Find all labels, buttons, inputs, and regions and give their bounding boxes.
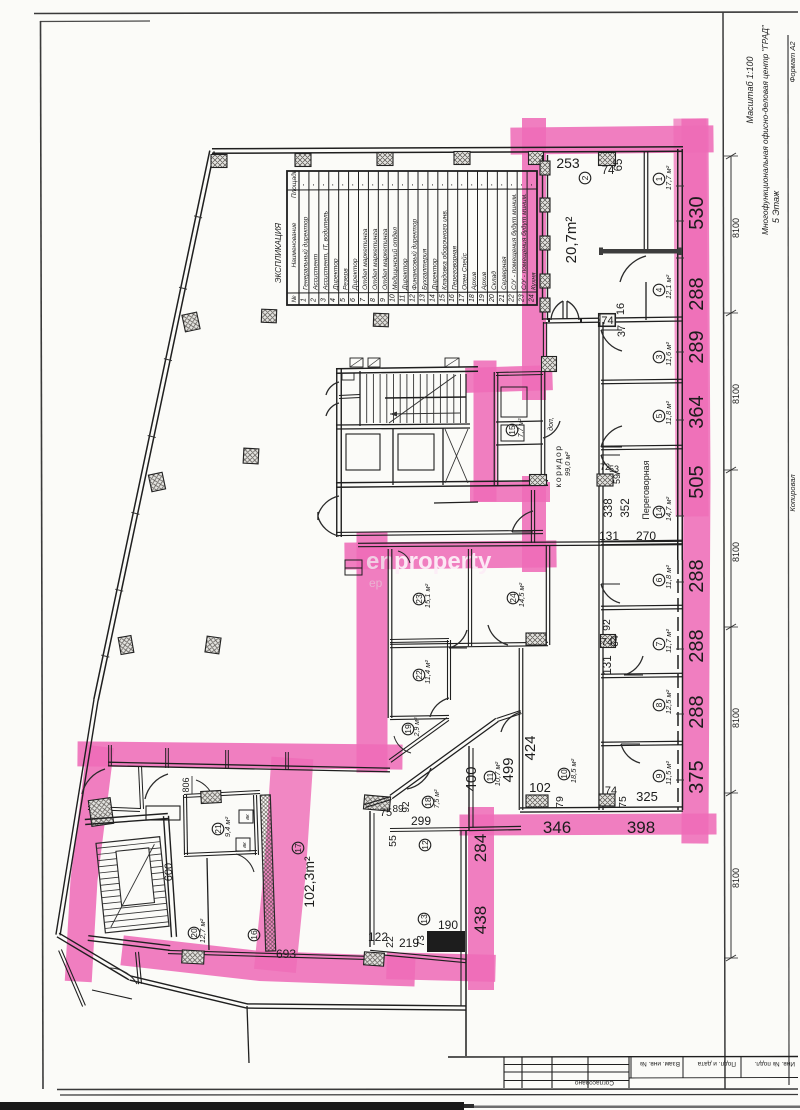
svg-text:17: 17: [459, 293, 466, 302]
svg-text:299: 299: [411, 814, 431, 828]
svg-text:Опен Спейс: Опен Спейс: [460, 252, 468, 290]
svg-text:3: 3: [654, 354, 664, 359]
svg-text:14,5 м²: 14,5 м²: [517, 582, 526, 607]
svg-text:Кладовка оборочного инв.: Кладовка оборочного инв.: [440, 209, 448, 290]
svg-text:Директор: Директор: [352, 258, 359, 291]
svg-text:400: 400: [463, 766, 480, 791]
svg-text:14,7 м²: 14,7 м²: [664, 496, 673, 521]
svg-text:65: 65: [613, 159, 625, 172]
svg-text:Отдел маркетинга: Отдел маркетинга: [361, 228, 369, 290]
svg-text:20: 20: [489, 294, 496, 303]
svg-text:8100: 8100: [731, 868, 741, 888]
svg-text:253: 253: [556, 155, 580, 171]
svg-text:17: 17: [293, 843, 303, 853]
svg-text:2: 2: [580, 175, 590, 180]
svg-text:19: 19: [403, 724, 413, 734]
svg-text:102: 102: [529, 780, 551, 795]
svg-text:5: 5: [340, 298, 347, 302]
svg-text:53: 53: [609, 464, 619, 474]
svg-text:Многофункциональная офисно-дел: Многофункциональная офисно-деловая центр…: [761, 24, 770, 235]
svg-text:ЭКСПЛИКАЦИЯ: ЭКСПЛИКАЦИЯ: [274, 222, 283, 283]
svg-text:Взам. инв. №: Взам. инв. №: [640, 1060, 680, 1067]
svg-text:Директор: Директор: [332, 258, 339, 291]
svg-text:Медицинский отдел: Медицинский отдел: [391, 227, 399, 290]
svg-text:806: 806: [181, 777, 191, 792]
svg-text:11,8 м²: 11,8 м²: [664, 401, 673, 425]
svg-text:288: 288: [686, 277, 708, 310]
svg-text:Формат А2: Формат А2: [788, 41, 797, 83]
svg-text:Резерв: Резерв: [342, 268, 349, 290]
svg-text:Копировал: Копировал: [788, 474, 797, 512]
svg-text:11,8 м²: 11,8 м²: [664, 565, 673, 589]
svg-text:14: 14: [429, 294, 436, 302]
svg-text:15,1 м²: 15,1 м²: [423, 583, 432, 608]
svg-text:Отдел маркетинга: Отдел маркетинга: [371, 228, 379, 290]
svg-text:12: 12: [410, 294, 417, 302]
svg-text:Архив: Архив: [481, 271, 488, 291]
svg-text:Серверная: Серверная: [501, 256, 508, 290]
svg-text:37: 37: [616, 325, 628, 337]
svg-text:9: 9: [380, 298, 387, 302]
svg-text:Финансовый директор: Финансовый директор: [411, 218, 419, 290]
svg-text:С/У - помещения будут миним.: С/У - помещения будут миним.: [520, 193, 528, 290]
svg-text:Кухня: Кухня: [531, 272, 538, 290]
svg-text:74: 74: [605, 785, 617, 797]
svg-text:Директор: Директор: [432, 258, 439, 291]
svg-text:64: 64: [609, 635, 621, 647]
svg-text:property: property: [394, 548, 492, 575]
svg-text:20,7m²: 20,7m²: [563, 217, 580, 264]
svg-text:16: 16: [249, 930, 259, 940]
svg-text:18,5 м²: 18,5 м²: [569, 758, 578, 783]
svg-text:8100: 8100: [731, 708, 741, 728]
svg-text:438: 438: [471, 906, 490, 934]
svg-text:Масштаб 1:100: Масштаб 1:100: [745, 56, 755, 123]
svg-text:6: 6: [654, 577, 664, 582]
svg-text:190: 190: [438, 918, 458, 932]
svg-text:288: 288: [686, 695, 708, 728]
svg-text:14: 14: [654, 507, 664, 517]
svg-text:131: 131: [599, 529, 619, 543]
svg-text:Директор: Директор: [402, 258, 409, 291]
svg-text:Отдел маркетинга: Отдел маркетинга: [381, 228, 389, 290]
svg-text:375: 375: [686, 760, 708, 793]
svg-text:en: en: [366, 548, 394, 575]
svg-text:22: 22: [509, 294, 516, 303]
svg-text:17,7 м²: 17,7 м²: [664, 165, 673, 190]
svg-text:Переговорная: Переговорная: [641, 460, 651, 519]
svg-text:12,7 м²: 12,7 м²: [198, 918, 207, 943]
svg-text:338: 338: [603, 498, 615, 517]
svg-text:79: 79: [554, 796, 566, 808]
svg-text:59: 59: [612, 474, 622, 484]
svg-text:4: 4: [330, 298, 337, 302]
svg-text:Переговорная: Переговорная: [451, 245, 458, 290]
svg-text:16: 16: [615, 303, 627, 315]
svg-text:7,7 м²: 7,7 м²: [518, 418, 525, 437]
svg-text:7,5 м²: 7,5 м²: [434, 789, 441, 808]
svg-text:23: 23: [519, 294, 526, 303]
svg-text:№: №: [291, 295, 298, 302]
svg-text:289: 289: [686, 330, 708, 363]
svg-text:вк: вк: [245, 814, 251, 820]
svg-text:Наименование: Наименование: [291, 222, 298, 267]
svg-text:Архив: Архив: [471, 271, 478, 291]
svg-text:92: 92: [601, 619, 613, 631]
svg-text:коридор: коридор: [553, 445, 563, 488]
svg-text:1: 1: [300, 298, 307, 302]
svg-text:доп,: доп,: [547, 417, 555, 431]
svg-text:16: 16: [449, 294, 456, 302]
svg-text:ep: ep: [369, 576, 383, 590]
svg-text:Согласовано: Согласовано: [575, 1079, 614, 1086]
svg-text:13: 13: [419, 294, 426, 302]
svg-text:12,5 м²: 12,5 м²: [664, 689, 673, 714]
svg-text:122: 122: [368, 930, 388, 944]
svg-text:364: 364: [686, 395, 708, 428]
svg-text:8100: 8100: [731, 542, 741, 562]
svg-text:92: 92: [401, 801, 412, 813]
svg-text:8: 8: [370, 298, 377, 302]
svg-text:9,4 м²: 9,4 м²: [223, 816, 232, 837]
svg-text:99,0 м²: 99,0 м²: [563, 451, 572, 476]
svg-text:499: 499: [500, 757, 517, 782]
svg-text:вк: вк: [242, 842, 248, 848]
svg-text:10: 10: [559, 769, 569, 779]
svg-text:6: 6: [350, 298, 357, 302]
svg-text:8100: 8100: [731, 384, 741, 404]
svg-text:288: 288: [686, 559, 708, 592]
svg-text:2: 2: [310, 298, 317, 303]
svg-text:11,5 м²: 11,5 м²: [664, 761, 673, 785]
svg-text:55: 55: [387, 835, 399, 847]
svg-text:5 Этаж: 5 Этаж: [771, 190, 781, 223]
svg-text:Ассистент, IT, водитель: Ассистент, IT, водитель: [321, 210, 329, 291]
svg-text:19: 19: [479, 294, 486, 302]
svg-text:15: 15: [507, 425, 517, 435]
svg-text:18: 18: [469, 294, 476, 302]
svg-text:Площадь: Площадь: [290, 169, 298, 198]
svg-text:11,6 м²: 11,6 м²: [664, 342, 673, 366]
svg-text:8100: 8100: [731, 218, 741, 238]
svg-text:398: 398: [627, 818, 655, 837]
svg-text:Ассистент: Ассистент: [313, 253, 320, 291]
svg-text:4: 4: [654, 287, 664, 292]
svg-text:21: 21: [213, 824, 223, 834]
svg-text:530: 530: [686, 196, 708, 229]
svg-text:11: 11: [400, 295, 407, 302]
svg-text:24: 24: [529, 294, 536, 303]
svg-text:11,7 м²: 11,7 м²: [664, 629, 673, 653]
svg-text:12: 12: [420, 840, 430, 850]
svg-text:Бухгалтерия: Бухгалтерия: [422, 248, 429, 290]
svg-text:75: 75: [617, 796, 629, 808]
svg-text:288: 288: [686, 629, 708, 662]
svg-text:Генеральный директор: Генеральный директор: [302, 216, 310, 290]
svg-text:75: 75: [380, 807, 392, 819]
svg-text:Подп. и дата: Подп. и дата: [697, 1060, 736, 1067]
svg-text:5: 5: [654, 413, 664, 418]
svg-text:Инв. № подл.: Инв. № подл.: [754, 1060, 795, 1067]
svg-text:С/У - помещения будут миним.: С/У - помещения будут миним.: [510, 193, 518, 290]
svg-text:693: 693: [276, 947, 296, 961]
svg-text:1: 1: [654, 176, 664, 181]
svg-text:15: 15: [439, 294, 446, 302]
svg-text:219: 219: [399, 936, 419, 950]
svg-text:600: 600: [163, 863, 175, 881]
svg-text:18: 18: [423, 797, 433, 807]
svg-text:352: 352: [620, 498, 632, 517]
svg-text:284: 284: [471, 834, 490, 862]
svg-text:131: 131: [602, 655, 614, 674]
svg-text:10: 10: [390, 294, 397, 302]
svg-text:8: 8: [654, 702, 664, 707]
svg-text:102,3m²: 102,3m²: [301, 856, 317, 908]
svg-text:12,1 м²: 12,1 м²: [664, 274, 673, 299]
svg-text:424: 424: [522, 735, 539, 760]
svg-text:11,4 м²: 11,4 м²: [423, 660, 432, 684]
svg-text:7: 7: [654, 641, 664, 646]
svg-text:2,9 м²: 2,9 м²: [414, 717, 421, 737]
svg-text:Склад: Склад: [490, 271, 498, 290]
svg-text:346: 346: [543, 818, 571, 837]
svg-text:13: 13: [419, 914, 429, 924]
svg-text:505: 505: [686, 465, 708, 498]
svg-text:21: 21: [499, 294, 506, 303]
svg-text:3: 3: [320, 298, 327, 302]
svg-text:9: 9: [654, 773, 664, 778]
svg-text:325: 325: [636, 789, 658, 804]
